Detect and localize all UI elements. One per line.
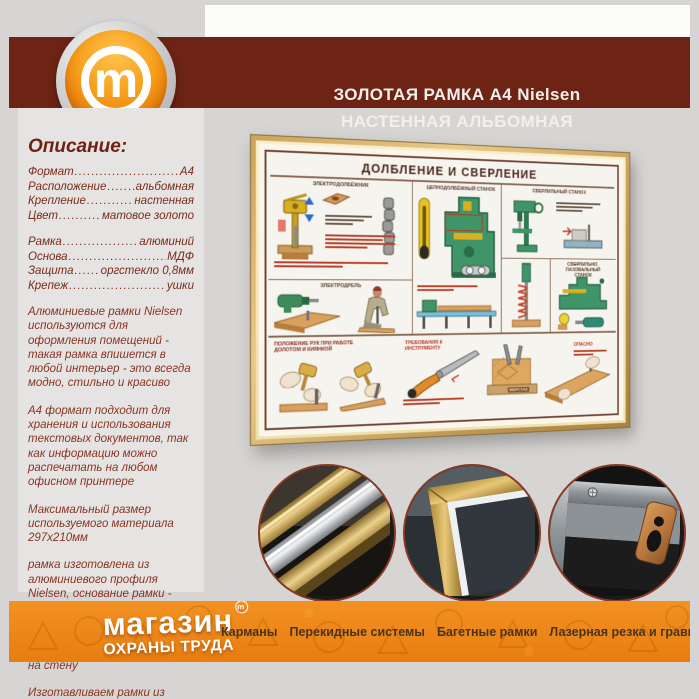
- spec-row-layout: Расположениеальбомная: [28, 180, 194, 195]
- spec-row-format: ФорматА4: [28, 165, 194, 180]
- fine-print-lines: [417, 283, 486, 293]
- dotted-leader: [75, 165, 179, 180]
- spec-value: ушки: [167, 279, 194, 294]
- spec-label: Защита: [28, 264, 73, 279]
- page-title: ЗОЛОТАЯ РАМКА А4 Nielsen НАСТЕННАЯ АЛЬБО…: [224, 81, 690, 135]
- fine-print-lines: [325, 232, 405, 251]
- spec-value: алюминий: [139, 235, 194, 250]
- description-paragraph: Изготавливаем рамки из багетного профиля…: [28, 686, 194, 699]
- spec-row-protection: Защитаоргстекло 0,8мм: [28, 264, 194, 279]
- page-title-line1: ЗОЛОТАЯ РАМКА А4 Nielsen: [224, 81, 690, 108]
- dotted-leader: [107, 180, 134, 195]
- page-title-line2: НАСТЕННАЯ АЛЬБОМНАЯ: [224, 108, 690, 135]
- fine-print-lines: [556, 200, 606, 214]
- drill-press-icon: [506, 197, 547, 255]
- menu-item-laser-cutting[interactable]: Лазерная резка и гравировка: [549, 625, 690, 639]
- shop-logo[interactable]: магазинm ОХРАНЫ ТРУДА: [102, 605, 234, 658]
- spec-label: Рамка: [28, 235, 62, 250]
- description-heading: Описание:: [28, 136, 194, 158]
- poster-section-title: ЭЛЕКТРОДОЛБЁЖНИК: [291, 179, 390, 188]
- spec-label: Цвет: [28, 209, 58, 224]
- menu-item-pockets[interactable]: Карманы: [221, 625, 277, 639]
- spec-row-frame: Рамкаалюминий: [28, 235, 194, 250]
- horizontal-drill-icon: [556, 312, 611, 331]
- fine-print-lines: [403, 395, 472, 407]
- safety-poster: ДОЛБЛЕНИЕ И СВЕРЛЕНИЕ ЭЛЕКТРОДОЛБЁЖНИК: [265, 150, 619, 431]
- workbench-label: ВЕРСТАК: [508, 387, 529, 393]
- hands-mallet-chisel-icon: [336, 358, 389, 412]
- spec-value: МДФ: [167, 250, 194, 265]
- spec-value: оргстекло 0,8мм: [101, 264, 194, 279]
- dotted-leader: [59, 209, 101, 224]
- poster-section-title: ПОЛОЖЕНИЕ РУК ПРИ РАБОТЕ ДОЛОТОМ И КИЯНК…: [274, 339, 369, 353]
- description-sidebar: Описание: ФорматА4 Расположениеальбомная…: [18, 108, 204, 592]
- photo-frame-corner: [403, 464, 541, 602]
- safety-goggles-icon: [460, 263, 490, 277]
- chain-bar-icon: [416, 196, 432, 263]
- dotted-leader: [74, 264, 99, 279]
- description-paragraph: А4 формат подходит для хранения и исполь…: [28, 404, 194, 490]
- small-machine-sketch-icon: [561, 220, 605, 251]
- photo-frame-back-hanger: [548, 464, 686, 602]
- spec-row-color: Цветматовое золото: [28, 209, 194, 224]
- plank-hand-chisel-icon: [540, 353, 614, 406]
- hands-mallet-chisel-icon: [276, 359, 331, 414]
- svg-text:m: m: [94, 52, 138, 108]
- dotted-leader: [69, 250, 167, 265]
- conveyor-support-icon: [416, 298, 498, 330]
- product-page: ЗОЛОТАЯ РАМКА А4 Nielsen НАСТЕННАЯ АЛЬБО…: [0, 0, 699, 699]
- dotted-leader: [63, 235, 138, 250]
- footer-menu: Карманы Перекидные системы Багетные рамк…: [221, 601, 684, 662]
- spec-row-fastener: Крепежушки: [28, 279, 194, 294]
- spec-row-base: ОсноваМДФ: [28, 250, 194, 265]
- slot-drilling-machine-icon: [553, 273, 613, 313]
- footer-bar: магазинm ОХРАНЫ ТРУДА Карманы Перекидные…: [9, 601, 690, 662]
- spec-value: настенная: [134, 194, 194, 209]
- photo-aluminum-profiles: [258, 464, 396, 602]
- menu-item-baguette-frames[interactable]: Багетные рамки: [437, 625, 537, 639]
- fine-print-lines: [325, 213, 378, 228]
- spec-value: альбомная: [136, 180, 194, 195]
- shop-logo-line1: магазинm: [102, 605, 234, 641]
- poster-section-title: ТРЕБОВАНИЯ К ИНСТРУМЕНТУ: [405, 339, 452, 352]
- description-paragraph: Алюминиевые рамки Nielsen используются д…: [28, 305, 194, 391]
- poster-section-title: ЦЕПНОДОЛБЁЖНЫЙ СТАНОК: [427, 184, 487, 192]
- spec-value: матовое золото: [102, 209, 194, 224]
- spec-value: А4: [180, 165, 194, 180]
- dotted-leader: [69, 279, 166, 294]
- top-white-strip: [205, 5, 690, 38]
- warning-callout-box: [445, 214, 482, 232]
- product-photo-framed-poster: ДОЛБЛЕНИЕ И СВЕРЛЕНИЕ ЭЛЕКТРОДОЛБЁЖНИК: [250, 134, 630, 446]
- spec-label: Формат: [28, 165, 74, 180]
- description-paragraph: Максимальный размер используемого матери…: [28, 503, 194, 546]
- wood-workpiece-icon: [321, 191, 351, 207]
- spec-group-1: ФорматА4 Расположениеальбомная Крепление…: [28, 165, 194, 223]
- spec-label: Крепеж: [28, 279, 68, 294]
- drill-guard-spring-icon: [506, 261, 547, 329]
- worker-figure-icon: [356, 285, 397, 333]
- spec-label: Основа: [28, 250, 68, 265]
- wood-planks-icon: [272, 310, 342, 334]
- dotted-leader: [87, 194, 133, 209]
- danger-label: ОПАСНО: [574, 341, 593, 347]
- spec-group-2: Рамкаалюминий ОсноваМДФ Защитаоргстекло …: [28, 235, 194, 293]
- spec-label: Крепление: [28, 194, 86, 209]
- menu-item-flip-systems[interactable]: Перекидные системы: [289, 625, 424, 639]
- spec-row-mount: Креплениенастенная: [28, 194, 194, 209]
- spec-label: Расположение: [28, 180, 106, 195]
- workbench-chisels-icon: [486, 344, 539, 402]
- blue-arrows-icon: [305, 197, 314, 223]
- warning-lines: [274, 259, 403, 270]
- poster-section-title: СВЕРЛИЛЬНЫЙ СТАНОК: [520, 187, 598, 195]
